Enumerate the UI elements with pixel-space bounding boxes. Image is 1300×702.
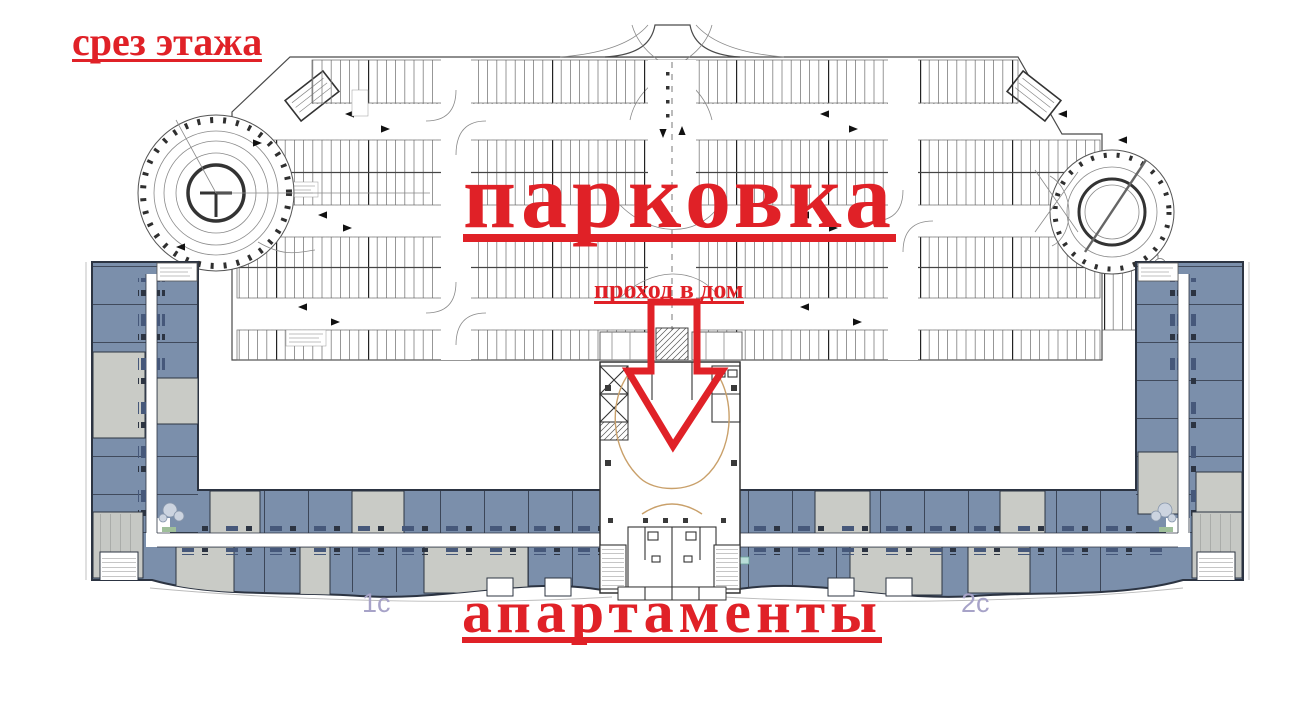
section-1-label: 1с [362,588,391,619]
floor-plan-page: срез этажа парковка проход в дом апартам… [0,0,1300,702]
floor-section-label: срез этажа [72,25,262,62]
apartments-label: апартаменты [462,588,882,643]
service-room-left [600,332,652,360]
parking-label-text: парковка [463,159,896,242]
central-lobby-block [600,362,749,600]
parking-label: парковка [463,159,896,242]
apartments-label-text: апартаменты [462,588,882,643]
passage-hatch [656,328,688,360]
section-2-label: 2с [961,588,990,619]
floor-section-label-text: срез этажа [72,25,262,62]
passage-label-text: проход в дом [594,279,744,304]
passage-label: проход в дом [594,279,744,304]
entrance-porch [886,578,912,596]
